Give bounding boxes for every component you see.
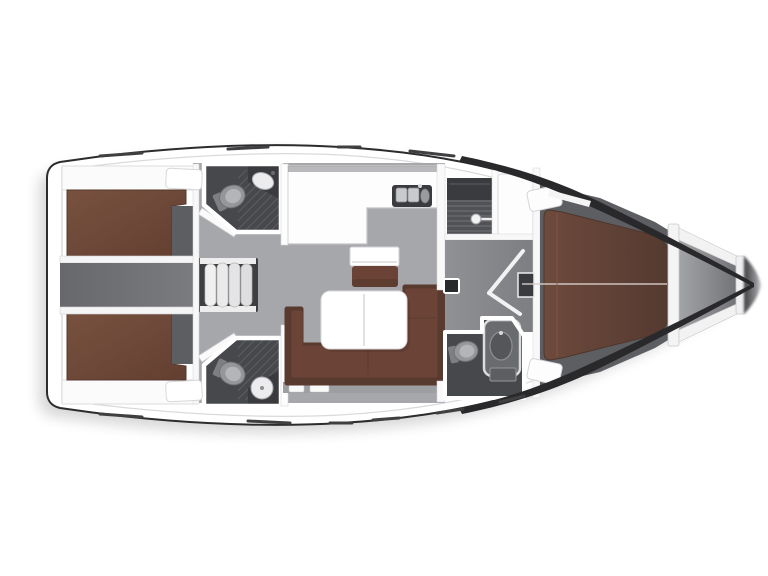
step-tread	[229, 263, 240, 307]
engine-corridor-floor	[60, 263, 198, 307]
companionway-rail-bottom	[200, 306, 256, 312]
fwd-head-midwall	[445, 234, 533, 240]
step-tread	[217, 263, 228, 307]
nav-station	[350, 247, 399, 287]
window-dash	[228, 147, 268, 149]
companionway-rail-top	[200, 258, 256, 264]
light-switch-panel	[444, 279, 459, 293]
sofa-locker	[289, 385, 304, 392]
wall-saloon-fwd	[437, 164, 445, 290]
galley-stove-burner	[421, 189, 430, 203]
aft-bulkhead	[193, 164, 199, 404]
bow-section	[668, 224, 761, 346]
faucet	[271, 171, 275, 175]
aft-cabin-port-berth	[67, 190, 186, 257]
vanity-basin	[490, 332, 512, 360]
fwd-head-locker-right	[498, 174, 533, 236]
vanity-drawer	[490, 368, 516, 381]
nav-seat-shade	[352, 279, 398, 287]
window-dash	[248, 421, 290, 423]
sofa-locker	[310, 385, 329, 392]
wall-head-galley	[281, 164, 288, 245]
step-tread	[205, 264, 216, 306]
shower-floor	[447, 200, 492, 234]
engine-corridor-wall-top	[60, 256, 198, 263]
bow-stem-bar	[736, 256, 745, 314]
engine-corridor-wall-bottom	[60, 307, 198, 314]
forward-cabin	[518, 184, 678, 386]
companionway	[196, 258, 258, 312]
galley-faucet	[418, 184, 422, 188]
deck-hatch-aft-top	[166, 168, 203, 190]
yacht-floorplan-canvas	[0, 0, 768, 576]
step-tread	[241, 264, 252, 306]
vanity-faucet	[499, 331, 503, 335]
aft-section	[60, 166, 198, 404]
chart-table-top	[350, 247, 399, 266]
window-dash	[373, 418, 399, 420]
fwd-head-top-locker	[447, 178, 492, 200]
aft-cabin-starboard-berth	[67, 313, 186, 380]
deck-hatch-aft-bottom	[166, 380, 203, 402]
fwd-cabin-step	[518, 273, 534, 297]
galley-sink-right	[408, 188, 419, 202]
galley-locker-shadow	[288, 166, 441, 172]
sink-drain	[260, 386, 264, 390]
shower-head	[471, 214, 481, 224]
aft-cabin-starboard-floor	[172, 313, 196, 364]
galley-sink-left	[396, 188, 407, 202]
shower-wall	[492, 170, 498, 234]
aft-cabin-port-floor	[172, 206, 196, 257]
floorplan-svg	[0, 0, 768, 576]
